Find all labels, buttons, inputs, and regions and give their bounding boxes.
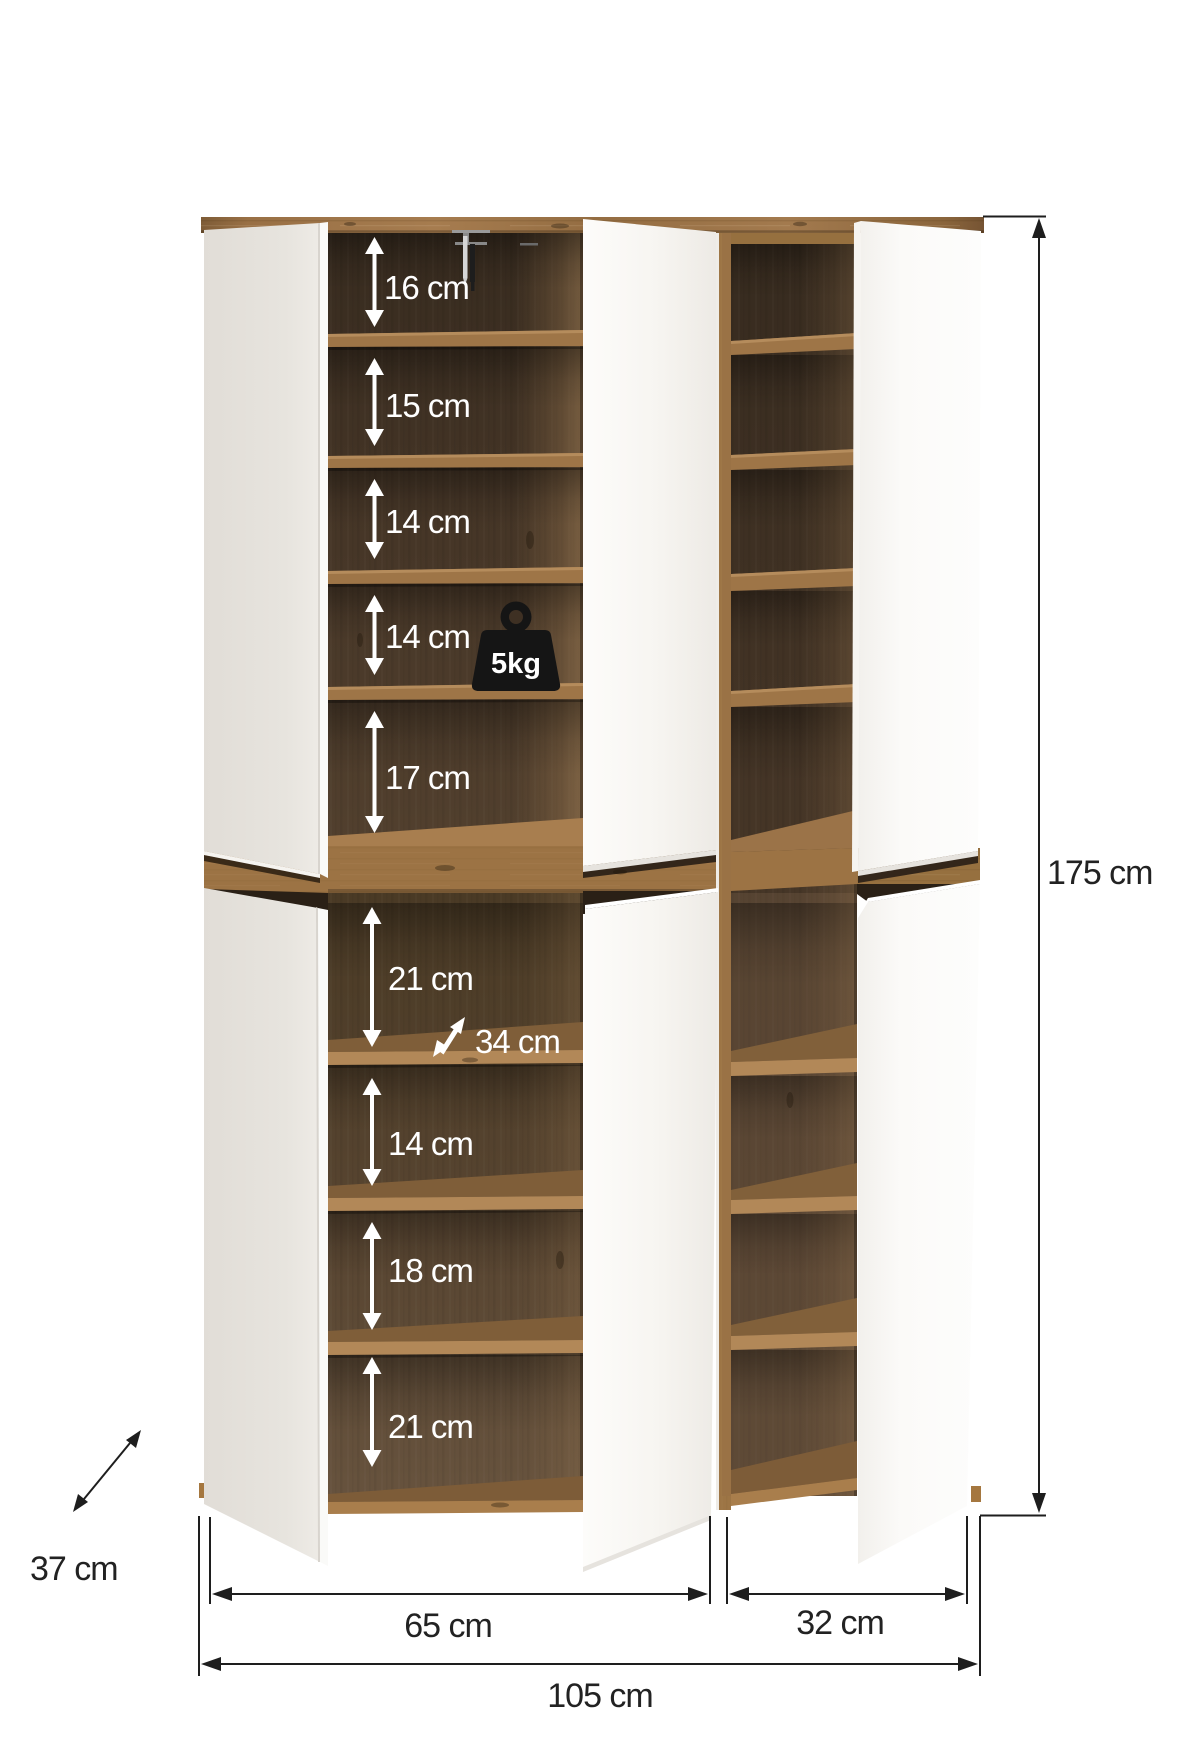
svg-text:65 cm: 65 cm	[404, 1607, 492, 1645]
svg-text:21 cm: 21 cm	[388, 1408, 473, 1445]
svg-text:14 cm: 14 cm	[385, 618, 470, 655]
svg-text:14 cm: 14 cm	[388, 1125, 473, 1162]
svg-text:16 cm: 16 cm	[384, 269, 469, 306]
svg-text:37 cm: 37 cm	[30, 1550, 118, 1588]
svg-text:105 cm: 105 cm	[547, 1677, 653, 1715]
svg-text:5kg: 5kg	[491, 648, 541, 680]
svg-text:34 cm: 34 cm	[475, 1023, 560, 1060]
svg-text:21 cm: 21 cm	[388, 960, 473, 997]
svg-text:14 cm: 14 cm	[385, 503, 470, 540]
svg-text:18 cm: 18 cm	[388, 1252, 473, 1289]
svg-text:32 cm: 32 cm	[796, 1604, 884, 1642]
svg-text:17 cm: 17 cm	[385, 759, 470, 796]
svg-text:15 cm: 15 cm	[385, 387, 470, 424]
svg-text:175 cm: 175 cm	[1047, 854, 1153, 892]
